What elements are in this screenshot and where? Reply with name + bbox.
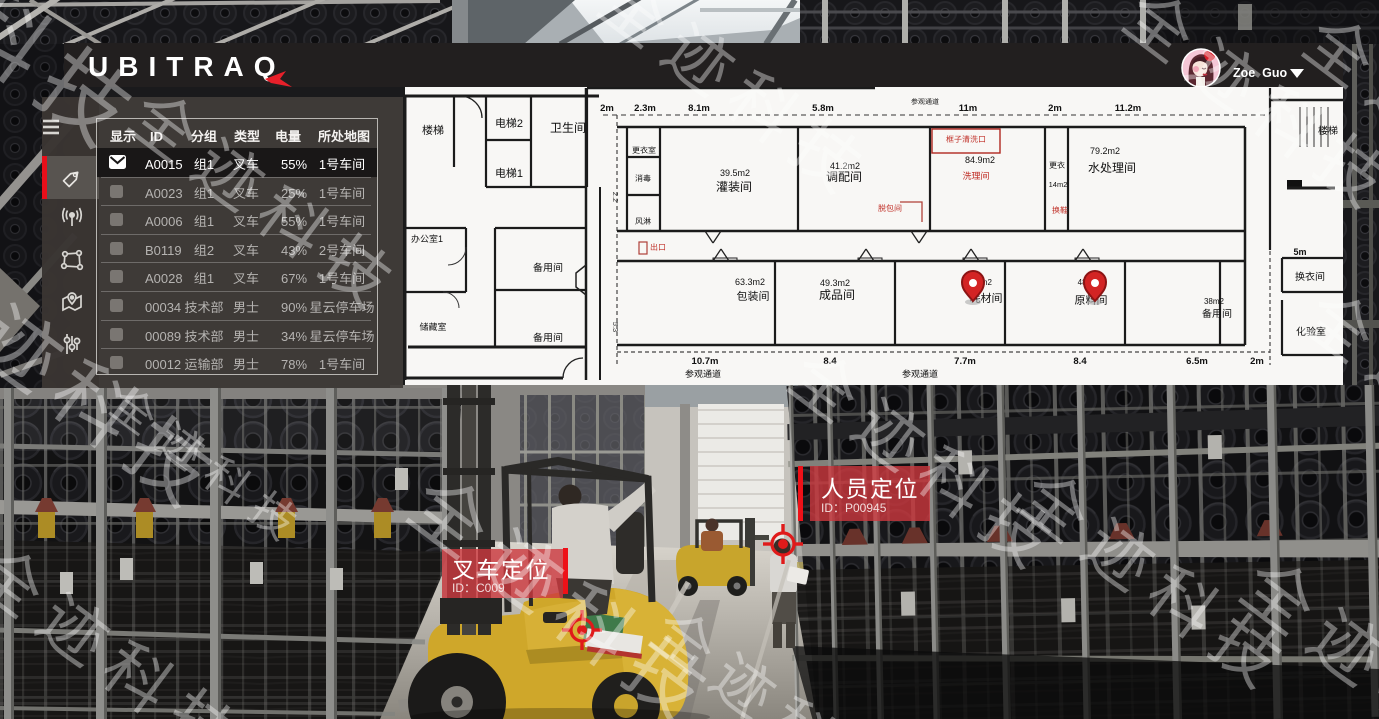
svg-text:全迹科技: 全迹科技 [0, 519, 270, 719]
svg-text:全迹科技: 全迹科技 [112, 64, 425, 333]
svg-text:全迹科技: 全迹科技 [1287, 264, 1379, 533]
svg-text:全迹科技: 全迹科技 [582, 0, 895, 219]
svg-text:全迹科技: 全迹科技 [772, 324, 1085, 593]
